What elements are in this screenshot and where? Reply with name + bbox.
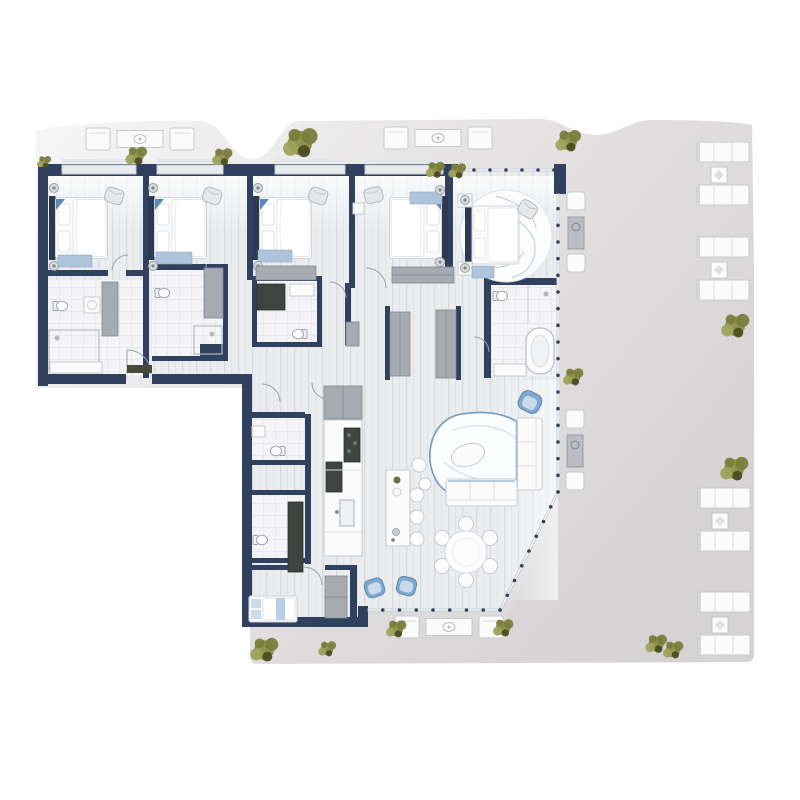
washbasin <box>84 297 100 313</box>
mullion-dot <box>472 168 476 172</box>
ceiling-light <box>254 184 263 193</box>
bedside-rug <box>58 255 92 267</box>
mullion-dot <box>448 608 452 612</box>
mullion-dot <box>556 257 560 261</box>
mullion-dot <box>556 324 560 328</box>
bar-stool <box>410 488 424 502</box>
mullion-dot <box>527 549 531 553</box>
outdoor-stool <box>567 192 585 210</box>
closet <box>346 322 359 346</box>
shower-drain <box>544 292 549 297</box>
storage-column <box>102 282 118 336</box>
shower-enclosure <box>257 284 285 310</box>
side-table <box>353 203 364 214</box>
lounge-set <box>395 616 503 638</box>
mullion-dot <box>556 240 560 244</box>
outdoor-chair <box>86 128 110 150</box>
outdoor-bench <box>697 280 749 300</box>
duvet <box>488 208 518 262</box>
dining-chair <box>459 517 474 532</box>
throw-blanket <box>276 598 285 620</box>
pillow <box>474 238 485 258</box>
sofa-bottom <box>446 479 517 506</box>
dining-chair <box>459 573 474 588</box>
toilet <box>155 288 170 298</box>
outdoor-chair <box>384 127 408 149</box>
washbasin <box>290 284 314 296</box>
sink <box>340 500 354 526</box>
mullion-dot <box>520 564 524 568</box>
bed <box>390 196 449 260</box>
toilet <box>53 301 68 311</box>
table-lamp <box>461 196 470 205</box>
ceiling-light <box>436 258 445 267</box>
dining-table <box>445 531 487 573</box>
bedside-rug <box>472 266 494 278</box>
mullion-dot <box>549 505 553 509</box>
mullion-dot <box>513 579 517 583</box>
mullion-dot <box>556 207 560 211</box>
glass-wall-segment <box>456 168 556 172</box>
mullion-dot <box>504 168 508 172</box>
side-set <box>567 192 585 272</box>
mullion-dot <box>534 534 538 538</box>
burner <box>347 433 351 437</box>
ceiling-light <box>50 184 59 193</box>
shower-drain <box>55 336 60 341</box>
headboard <box>465 203 472 267</box>
wardrobe-column <box>204 268 223 318</box>
outdoor-bench <box>697 142 749 162</box>
outdoor-bench <box>698 488 750 508</box>
outdoor-console <box>568 217 584 249</box>
glass-wall-segment <box>556 190 560 494</box>
mullion-dot <box>542 520 546 524</box>
side-set <box>566 410 584 490</box>
mullion-dot <box>556 290 560 294</box>
bedside-rug <box>258 250 292 262</box>
ceiling-light <box>149 184 158 193</box>
island-plant <box>394 477 401 484</box>
toilet <box>493 291 508 301</box>
mullion-dot <box>556 357 560 361</box>
faucet <box>335 510 339 514</box>
mullion-dot <box>556 190 560 194</box>
toilet <box>293 329 308 339</box>
bed <box>148 196 207 260</box>
glass-wall-segment <box>364 608 502 612</box>
wardrobe <box>256 266 316 280</box>
mullion-dot <box>556 440 560 444</box>
mullion-dot <box>556 490 560 494</box>
mullion-dot <box>398 608 402 612</box>
side-pouf <box>419 478 431 490</box>
mullion-dot <box>520 168 524 172</box>
mullion-dot <box>381 608 385 612</box>
mullion-dot <box>556 474 560 478</box>
lounge-set <box>384 127 492 149</box>
burner <box>353 441 357 445</box>
mullion-dot <box>556 407 560 411</box>
mullion-dot <box>488 168 492 172</box>
mullion-dot <box>481 608 485 612</box>
washbasin <box>252 426 265 437</box>
bed <box>49 196 108 260</box>
outdoor-console <box>567 435 583 467</box>
ceiling-light <box>436 186 445 195</box>
outdoor-bench <box>697 185 749 205</box>
mullion-dot <box>498 608 502 612</box>
table-lamp <box>461 264 470 273</box>
mullion-dot <box>505 593 509 597</box>
mullion-dot <box>465 608 469 612</box>
outdoor-stool <box>567 254 585 272</box>
mullion-dot <box>556 307 560 311</box>
burner <box>347 449 351 453</box>
bar-stool <box>410 532 424 546</box>
mullion-dot <box>556 457 560 461</box>
ceiling-light <box>149 262 158 271</box>
entry-doormat <box>127 365 152 373</box>
shower-closet <box>288 502 303 572</box>
pillow <box>251 610 261 619</box>
outdoor-bench <box>697 237 749 257</box>
mullion-dot <box>431 608 435 612</box>
floor-plan-svg <box>0 0 800 800</box>
shower-drain <box>210 332 215 337</box>
sofa-right <box>516 418 542 490</box>
outdoor-chair <box>170 128 194 150</box>
mullion-dot <box>414 608 418 612</box>
floor-plan-canvas <box>0 0 800 800</box>
island-sink <box>393 529 400 536</box>
entry-console <box>50 362 102 373</box>
outdoor-bench <box>698 592 750 612</box>
toilet <box>271 446 286 456</box>
side-pouf <box>412 458 426 472</box>
mullion-dot <box>556 390 560 394</box>
mullion-dot <box>556 424 560 428</box>
lounge-set <box>86 128 194 150</box>
oven <box>326 462 342 492</box>
bathtub-basin <box>531 335 549 367</box>
mullion-dot <box>556 374 560 378</box>
outdoor-bench <box>698 635 750 655</box>
ceiling-light <box>50 262 59 271</box>
outdoor-stool <box>566 410 584 428</box>
cooktop <box>344 428 360 462</box>
bedside-rug <box>156 252 192 264</box>
outdoor-stool <box>566 472 584 490</box>
mullion-dot <box>364 608 368 612</box>
island-tap <box>391 538 395 542</box>
pillow <box>251 599 261 608</box>
mullion-dot <box>552 168 556 172</box>
vanity <box>494 364 526 376</box>
mullion-dot <box>556 340 560 344</box>
outdoor-bench <box>698 531 750 551</box>
toilet <box>253 535 268 545</box>
mullion-dot <box>536 168 540 172</box>
outdoor-chair <box>468 127 492 149</box>
bar-stool <box>410 510 424 524</box>
mullion-dot <box>556 224 560 228</box>
pillow <box>474 211 485 231</box>
master-bedroom <box>458 190 552 282</box>
mullion-dot <box>556 274 560 278</box>
